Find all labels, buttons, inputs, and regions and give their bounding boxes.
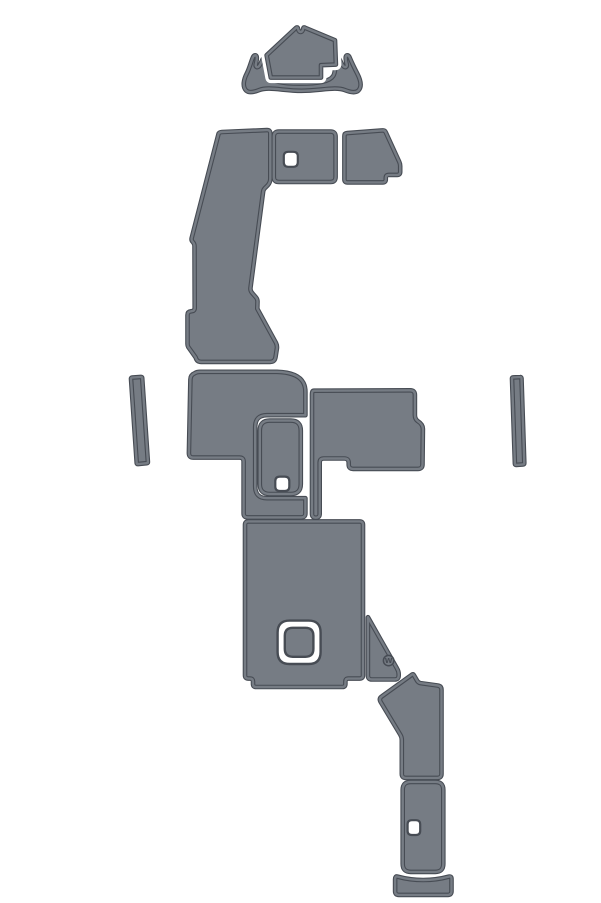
- mid-deck-right-pad: [312, 390, 423, 517]
- mid-deck-right-shape: [312, 390, 423, 517]
- starboard-side-strip: [512, 377, 524, 465]
- brand-stamp-letter: W: [385, 657, 393, 665]
- helm-box-pad: [274, 132, 336, 182]
- hatch-insert-pad: [260, 421, 301, 494]
- cut-diagram-canvas: W: [0, 0, 601, 903]
- hatch-insert-hole: [275, 477, 289, 491]
- starboard-upper-pad: [344, 130, 400, 182]
- cockpit-sole-pad: [245, 521, 363, 687]
- swim-platform-pad: [403, 782, 444, 872]
- port-side-strip: [131, 377, 148, 464]
- cockpit-hatch-inner-ring: [285, 628, 314, 657]
- helm-box-hole: [284, 152, 298, 167]
- port-gunwale-shape: [188, 130, 277, 362]
- port-gunwale-pad: [188, 130, 277, 362]
- swim-platform-hole: [408, 820, 421, 835]
- marine-deck-pad-template-sheet: W: [0, 0, 601, 903]
- transom-trim-pad: [395, 876, 451, 894]
- transom-step-pad: [380, 674, 442, 778]
- bow-deck-pad: [267, 27, 336, 77]
- corner-wedge-pad: W: [368, 617, 399, 679]
